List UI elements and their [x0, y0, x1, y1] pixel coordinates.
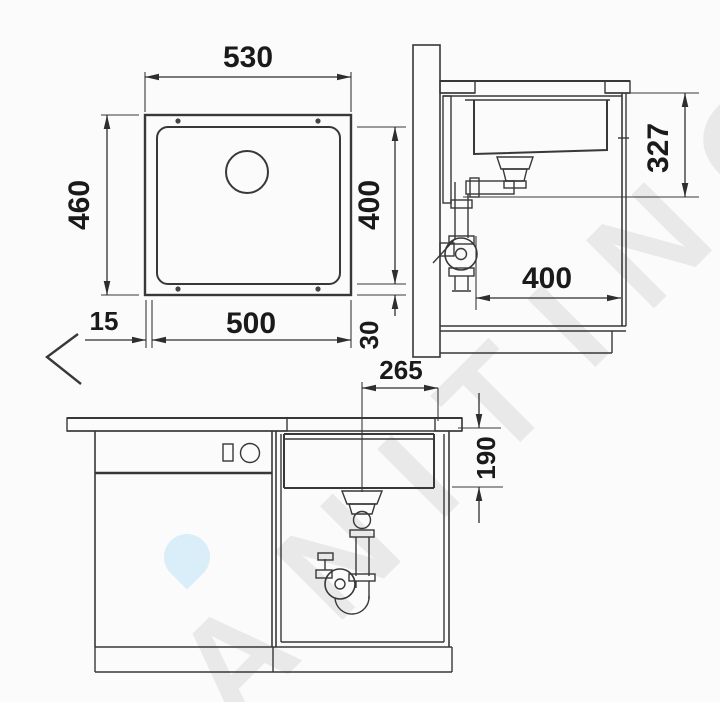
back-rail — [443, 96, 451, 203]
control-button — [223, 444, 233, 461]
sink-bowl-section — [474, 100, 607, 154]
drawing-canvas: SANITINO 530 — [0, 0, 720, 702]
svg-text:400: 400 — [522, 262, 572, 295]
plan-view: 530 460 500 15 — [47, 41, 406, 384]
plinth — [95, 647, 452, 672]
svg-text:500: 500 — [226, 307, 276, 340]
dim-15: 15 — [85, 306, 146, 340]
dishwasher-cabinet — [95, 431, 272, 647]
wall-section — [413, 45, 440, 357]
control-knob — [241, 444, 260, 463]
mounting-dot — [315, 286, 320, 291]
dim-400-bowl: 400 — [353, 127, 406, 295]
svg-text:265: 265 — [379, 355, 422, 385]
drain-hole — [226, 151, 268, 193]
dim-460: 460 — [63, 115, 139, 295]
drain-trap-side — [433, 157, 533, 291]
sink-outer-rim — [145, 115, 351, 295]
dim-530: 530 — [145, 41, 351, 112]
svg-text:400: 400 — [353, 180, 386, 230]
mounting-dot — [175, 286, 180, 291]
dim-265: 265 — [362, 355, 438, 492]
svg-text:190: 190 — [471, 436, 501, 479]
mounting-dot — [315, 118, 320, 123]
dim-190: 190 — [452, 393, 503, 523]
svg-text:460: 460 — [63, 180, 96, 230]
dim-30: 30 — [354, 295, 395, 349]
front-view: 265 190 — [67, 355, 503, 672]
side-view: 327 400 — [413, 45, 699, 357]
dim-500: 500 — [146, 300, 351, 348]
svg-text:327: 327 — [642, 123, 675, 173]
dim-400-depth: 400 — [476, 236, 621, 310]
sink-technical-drawing: 530 460 500 15 — [0, 0, 720, 702]
svg-text:15: 15 — [90, 306, 119, 336]
view-direction-icon — [47, 334, 81, 384]
svg-text:30: 30 — [354, 321, 384, 350]
drain-trap-front — [316, 491, 382, 614]
sink-bowl-front — [284, 434, 434, 488]
mounting-dot — [175, 118, 180, 123]
svg-text:530: 530 — [223, 41, 273, 74]
